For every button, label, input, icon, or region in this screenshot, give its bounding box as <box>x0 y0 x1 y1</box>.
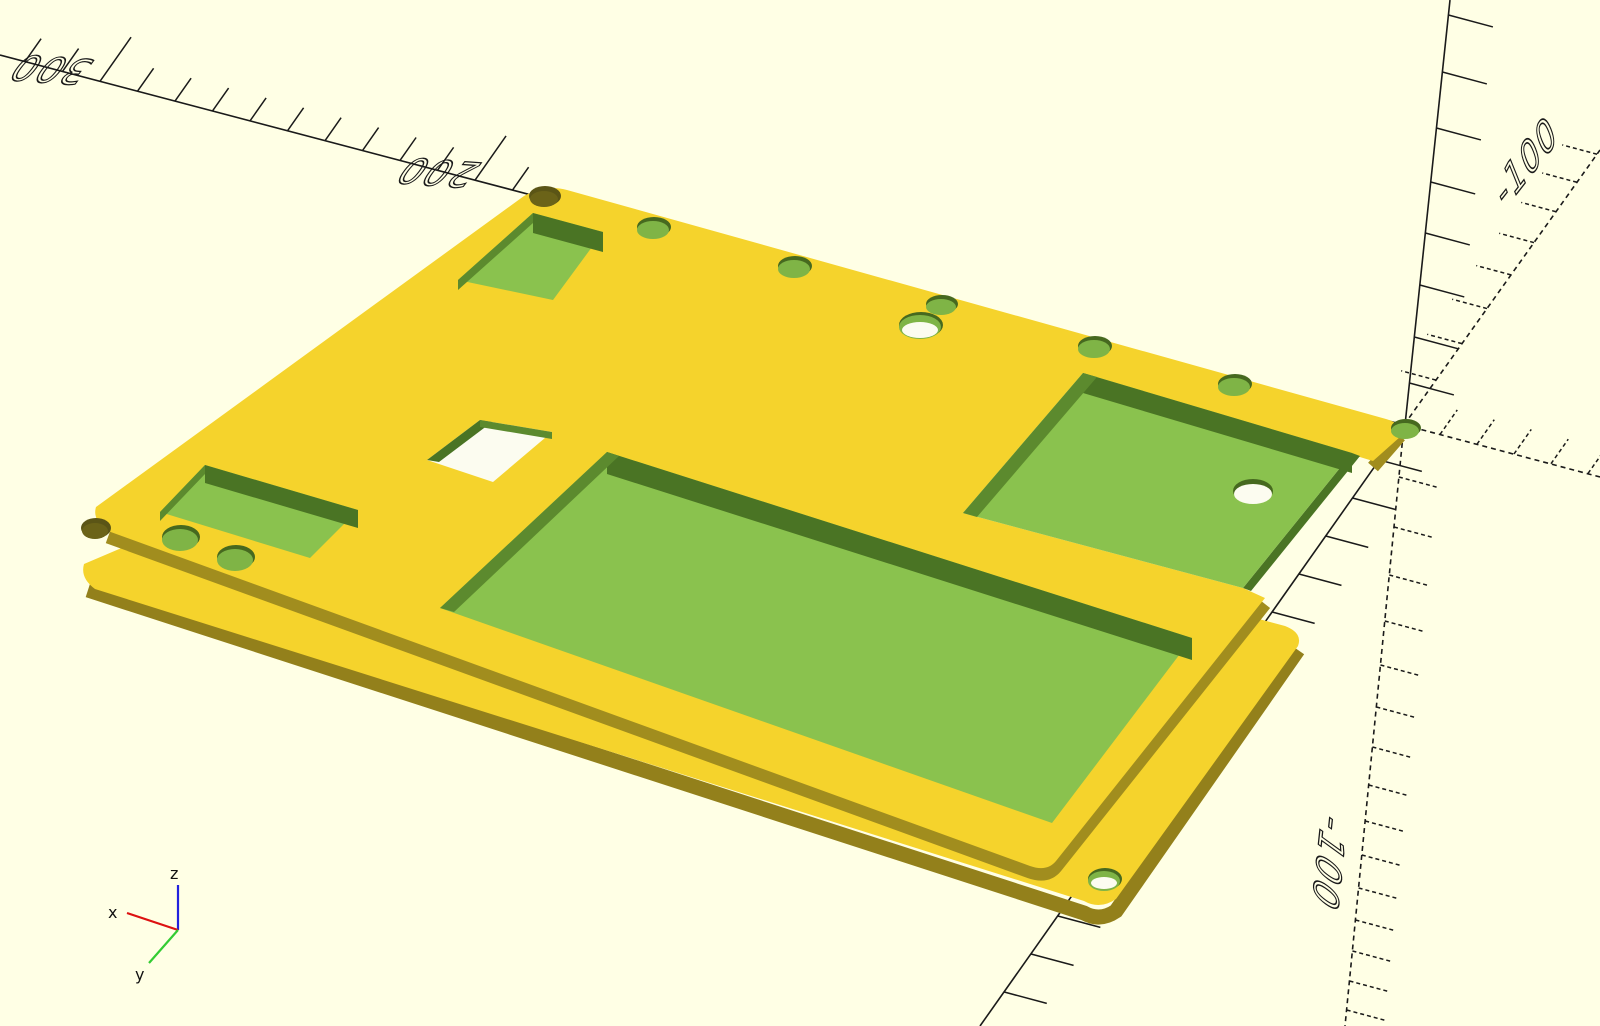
x-axis-label-200: 200 <box>386 149 491 194</box>
z-axis-indicator-label: z <box>170 864 178 883</box>
z-axis-negative-ticks <box>1347 477 1438 1020</box>
y-axis-indicator-label: y <box>135 965 144 984</box>
hole-corner-east <box>1391 419 1421 439</box>
x-axis-negative-line <box>1404 425 1600 477</box>
x-axis-negative-ticks <box>1440 410 1600 474</box>
axis-indicator: z x y <box>108 864 178 984</box>
x-axis-label-300: 300 <box>0 46 104 91</box>
3d-viewport[interactable]: 300 200 -100 -100 <box>0 0 1600 1026</box>
hole-corner-west <box>81 518 111 539</box>
x-axis-indicator-label: x <box>108 903 117 922</box>
z-axis-negative-line <box>1345 425 1404 1026</box>
y-axis-label-neg100: -100 <box>1490 105 1563 220</box>
z-axis-line <box>1405 0 1450 425</box>
z-axis-ticks <box>1409 15 1492 395</box>
y-axis-indicator-line <box>149 930 178 963</box>
z-axis-label-neg100: -100 <box>1304 804 1352 921</box>
model-plates <box>81 186 1421 917</box>
x-axis-indicator-line <box>127 913 178 930</box>
hole-through-green-area <box>1233 479 1273 504</box>
